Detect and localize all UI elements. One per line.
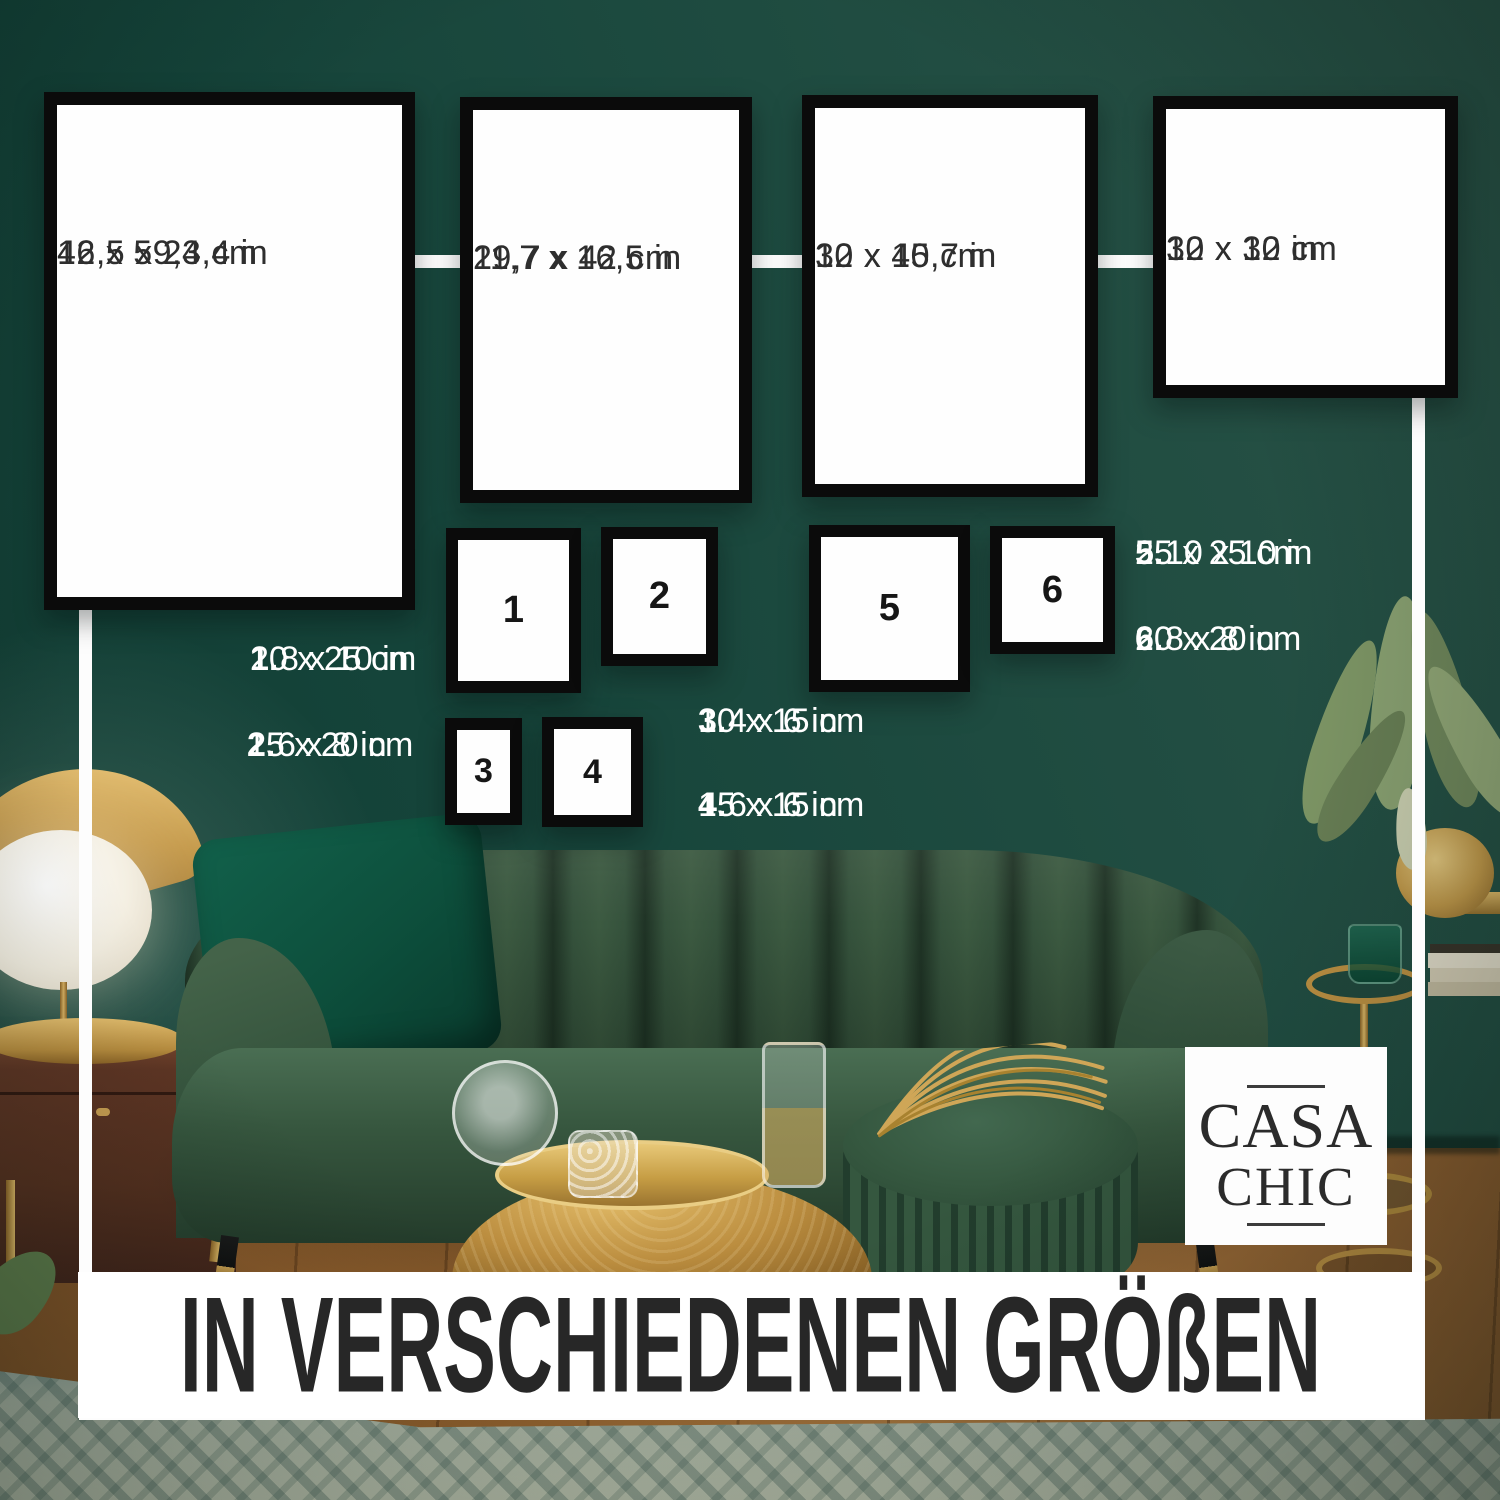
size-frame-label: 30 x 30 cm 12 x 12 in bbox=[1166, 109, 1445, 229]
frame-number: 6 bbox=[1002, 538, 1103, 642]
size-frame-number-3: 3 bbox=[445, 718, 522, 825]
logo-text-casa: CASA bbox=[1185, 1089, 1387, 1163]
logo-rule bbox=[1247, 1223, 1325, 1226]
size-frame-number-5: 5 bbox=[809, 525, 970, 692]
product-size-infographic: 42 x 59,4 cm 16,5 x 23,4 in 29,7 x 42 cm… bbox=[0, 0, 1500, 1500]
size-frame-number-2: 2 bbox=[601, 527, 718, 666]
frame-number: 2 bbox=[613, 539, 706, 654]
size-frame-label: 29,7 x 42 cm 11,7 x 16,5 in bbox=[473, 110, 739, 238]
frame-number: 3 bbox=[457, 730, 510, 813]
size-frame-42x59: 42 x 59,4 cm 16,5 x 23,4 in bbox=[44, 92, 415, 610]
size-frame-30x30: 30 x 30 cm 12 x 12 in bbox=[1153, 96, 1458, 398]
size-in: 16,5 x 23,4 in bbox=[57, 233, 268, 274]
frame-number: 4 bbox=[554, 729, 631, 815]
title-banner: IN VERSCHIEDENEN GRÖßEN bbox=[78, 1272, 1423, 1418]
legend-in: 6 x 6 in bbox=[698, 786, 838, 824]
size-frame-30x40: 30 x 40 cm 12 x 15,7 in bbox=[802, 95, 1098, 497]
size-in: 12 x 12 in bbox=[1166, 229, 1318, 270]
legend-in: 4 x 6 in bbox=[698, 702, 838, 740]
legend-in: 8 x 8 in bbox=[1135, 620, 1275, 658]
frame-number: 1 bbox=[458, 540, 569, 681]
legend-in: 6 x 8 in bbox=[247, 726, 387, 764]
legend-in: 10 x 10 in bbox=[1135, 534, 1312, 572]
size-frame-label: 30 x 40 cm 12 x 15,7 in bbox=[815, 108, 1085, 236]
banner-title: IN VERSCHIEDENEN GRÖßEN bbox=[180, 1272, 1321, 1418]
size-frame-number-1: 1 bbox=[446, 528, 581, 693]
logo-rule bbox=[1247, 1085, 1325, 1088]
size-in: 12 x 15,7 in bbox=[815, 236, 997, 277]
frame-number: 5 bbox=[821, 537, 958, 680]
size-frame-label: 42 x 59,4 cm 16,5 x 23,4 in bbox=[57, 105, 402, 233]
size-in: 11,7 x 16,5 in bbox=[473, 238, 682, 279]
logo-text-chic: CHIC bbox=[1185, 1155, 1387, 1218]
size-frame-number-6: 6 bbox=[990, 526, 1115, 654]
legend-in: 8 x 10 in bbox=[250, 640, 409, 678]
casa-chic-logo: CASA CHIC bbox=[1185, 1047, 1387, 1245]
size-frame-number-4: 4 bbox=[542, 717, 643, 827]
size-frame-29x42: 29,7 x 42 cm 11,7 x 16,5 in bbox=[460, 97, 752, 503]
